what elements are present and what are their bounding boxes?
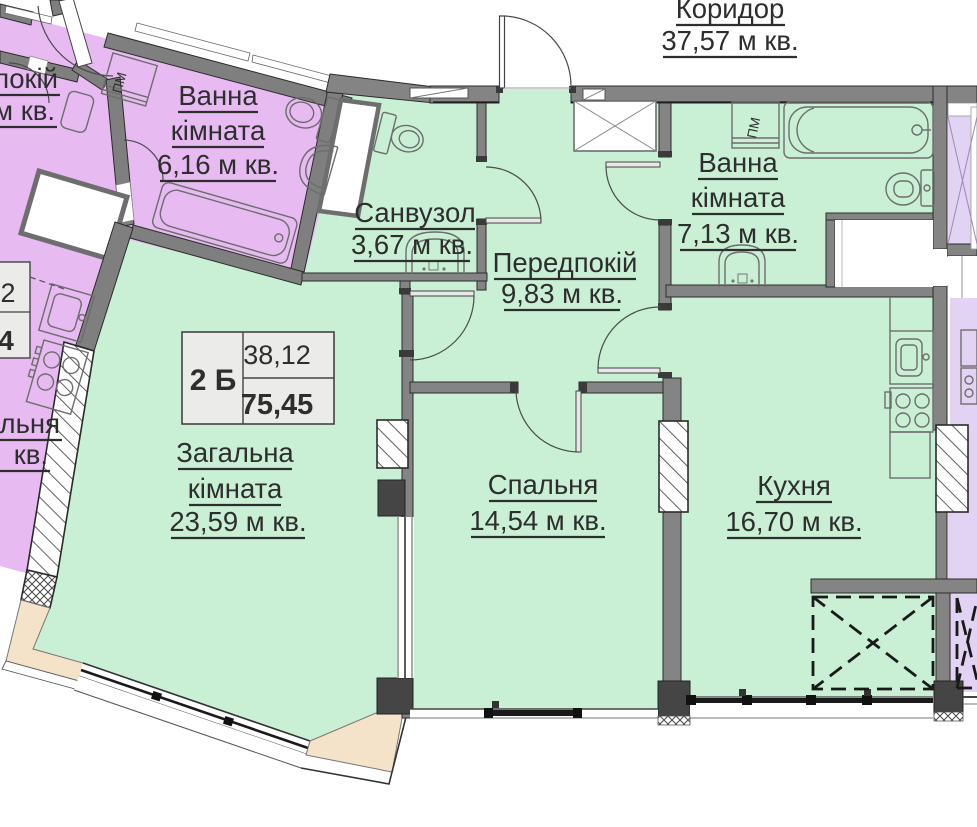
svg-text:2: 2 xyxy=(0,278,15,308)
svg-text:37,57 м кв.: 37,57 м кв. xyxy=(661,25,798,56)
svg-text:2 Б: 2 Б xyxy=(190,364,237,397)
svg-text:альня: альня xyxy=(0,408,60,439)
svg-text:9,83 м кв.: 9,83 м кв. xyxy=(501,278,623,309)
svg-text:38,12: 38,12 xyxy=(243,340,311,370)
svg-text:кв.: кв. xyxy=(14,439,48,470)
svg-text:покій: покій xyxy=(0,63,58,94)
svg-text:3,67 м кв.: 3,67 м кв. xyxy=(351,229,473,260)
svg-text:Загальна: Загальна xyxy=(176,437,294,468)
svg-text:Ванна: Ванна xyxy=(178,80,258,111)
svg-text:кімната: кімната xyxy=(691,182,786,213)
svg-text:кімната: кімната xyxy=(171,115,266,146)
svg-text:Кухня: Кухня xyxy=(757,470,831,501)
svg-text:23,59 м кв.: 23,59 м кв. xyxy=(169,506,306,537)
svg-text:14,54 м кв.: 14,54 м кв. xyxy=(469,505,606,536)
svg-text:16,70 м кв.: 16,70 м кв. xyxy=(725,506,862,537)
svg-text:кімната: кімната xyxy=(188,473,283,504)
svg-text:Передпокій: Передпокій xyxy=(493,247,638,278)
svg-text:6,16 м кв.: 6,16 м кв. xyxy=(157,149,279,180)
svg-text:Ванна: Ванна xyxy=(698,147,778,178)
svg-text:Спальня: Спальня xyxy=(488,469,599,500)
svg-text:м кв.: м кв. xyxy=(0,95,55,126)
svg-text:Коридор: Коридор xyxy=(676,0,785,24)
svg-text:4: 4 xyxy=(0,325,14,356)
svg-text:7,13 м кв.: 7,13 м кв. xyxy=(677,218,799,249)
svg-text:Санвузол: Санвузол xyxy=(354,197,475,228)
svg-text:75,45: 75,45 xyxy=(241,389,314,421)
